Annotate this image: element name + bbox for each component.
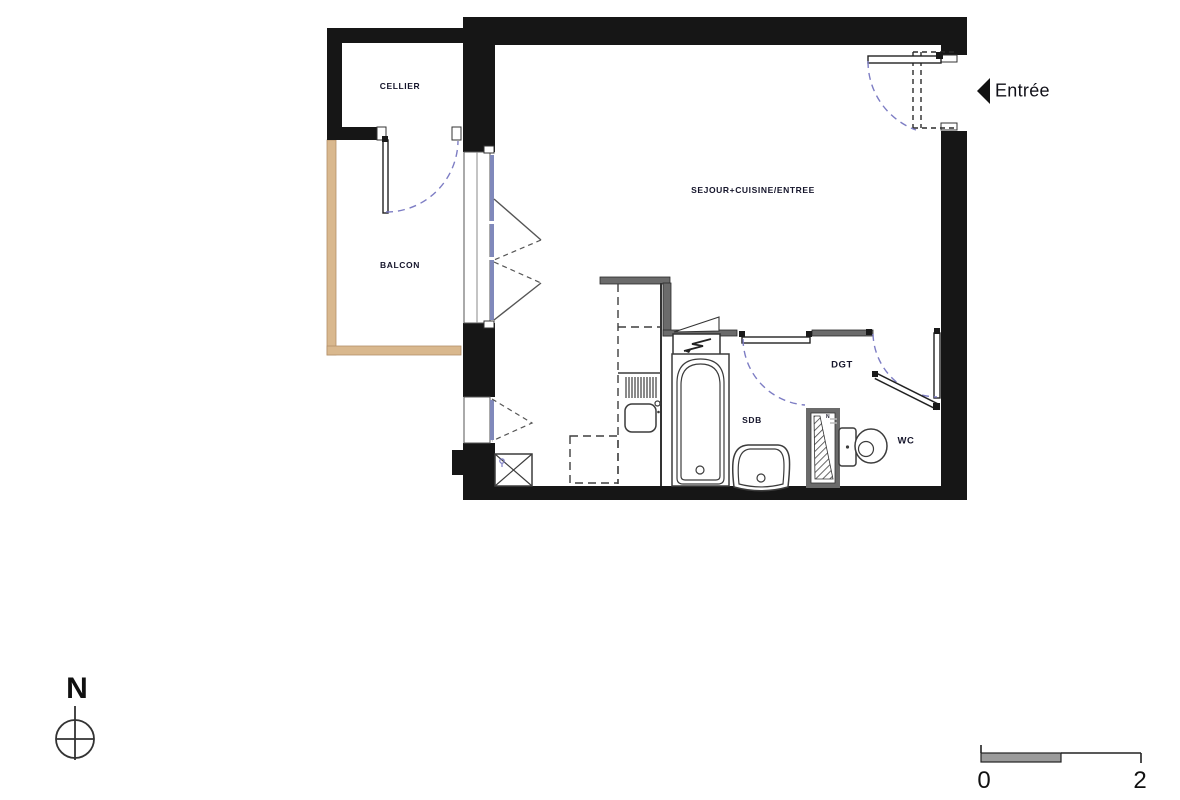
scale-start-label: 0 bbox=[977, 767, 990, 795]
north-compass-icon bbox=[56, 706, 94, 760]
balcony-deck bbox=[327, 140, 461, 355]
partitions bbox=[600, 277, 873, 336]
appliance-slot bbox=[570, 436, 618, 483]
hob-icon bbox=[626, 377, 656, 398]
washbasin bbox=[733, 445, 790, 491]
entrance-label: Entrée bbox=[995, 81, 1050, 102]
room-label-sejour: SEJOUR+CUISINE/ENTREE bbox=[691, 185, 815, 195]
scale-bar-graphic bbox=[981, 745, 1141, 763]
room-label-wc: WC bbox=[897, 436, 914, 447]
duct-shaft bbox=[806, 408, 840, 488]
duct-label: N bbox=[826, 414, 830, 420]
french-window bbox=[464, 146, 541, 328]
toilet bbox=[839, 428, 887, 466]
entrance-arrow-icon bbox=[977, 78, 990, 104]
scale-end-label: 2 bbox=[1133, 767, 1146, 795]
cellier-door bbox=[382, 136, 458, 213]
north-label: N bbox=[66, 672, 88, 706]
kitchen-sink bbox=[625, 401, 660, 432]
kitchen-counter bbox=[570, 283, 661, 486]
room-label-cellier: CELLIER bbox=[380, 81, 421, 91]
small-window bbox=[464, 397, 532, 443]
electrical-panel bbox=[673, 317, 720, 355]
floor-plan-drawing bbox=[0, 0, 1180, 800]
floor-plan-canvas: CELLIER BALCON SEJOUR+CUISINE/ENTREE DGT… bbox=[0, 0, 1180, 800]
room-label-balcon: BALCON bbox=[380, 260, 420, 270]
room-label-dgt: DGT bbox=[831, 360, 853, 371]
bathtub bbox=[672, 354, 729, 486]
sdb-door bbox=[739, 331, 812, 405]
entrance-door bbox=[868, 52, 957, 130]
wc-door bbox=[872, 371, 940, 410]
room-label-sdb: SDB bbox=[742, 415, 762, 425]
water-heater bbox=[495, 454, 532, 486]
